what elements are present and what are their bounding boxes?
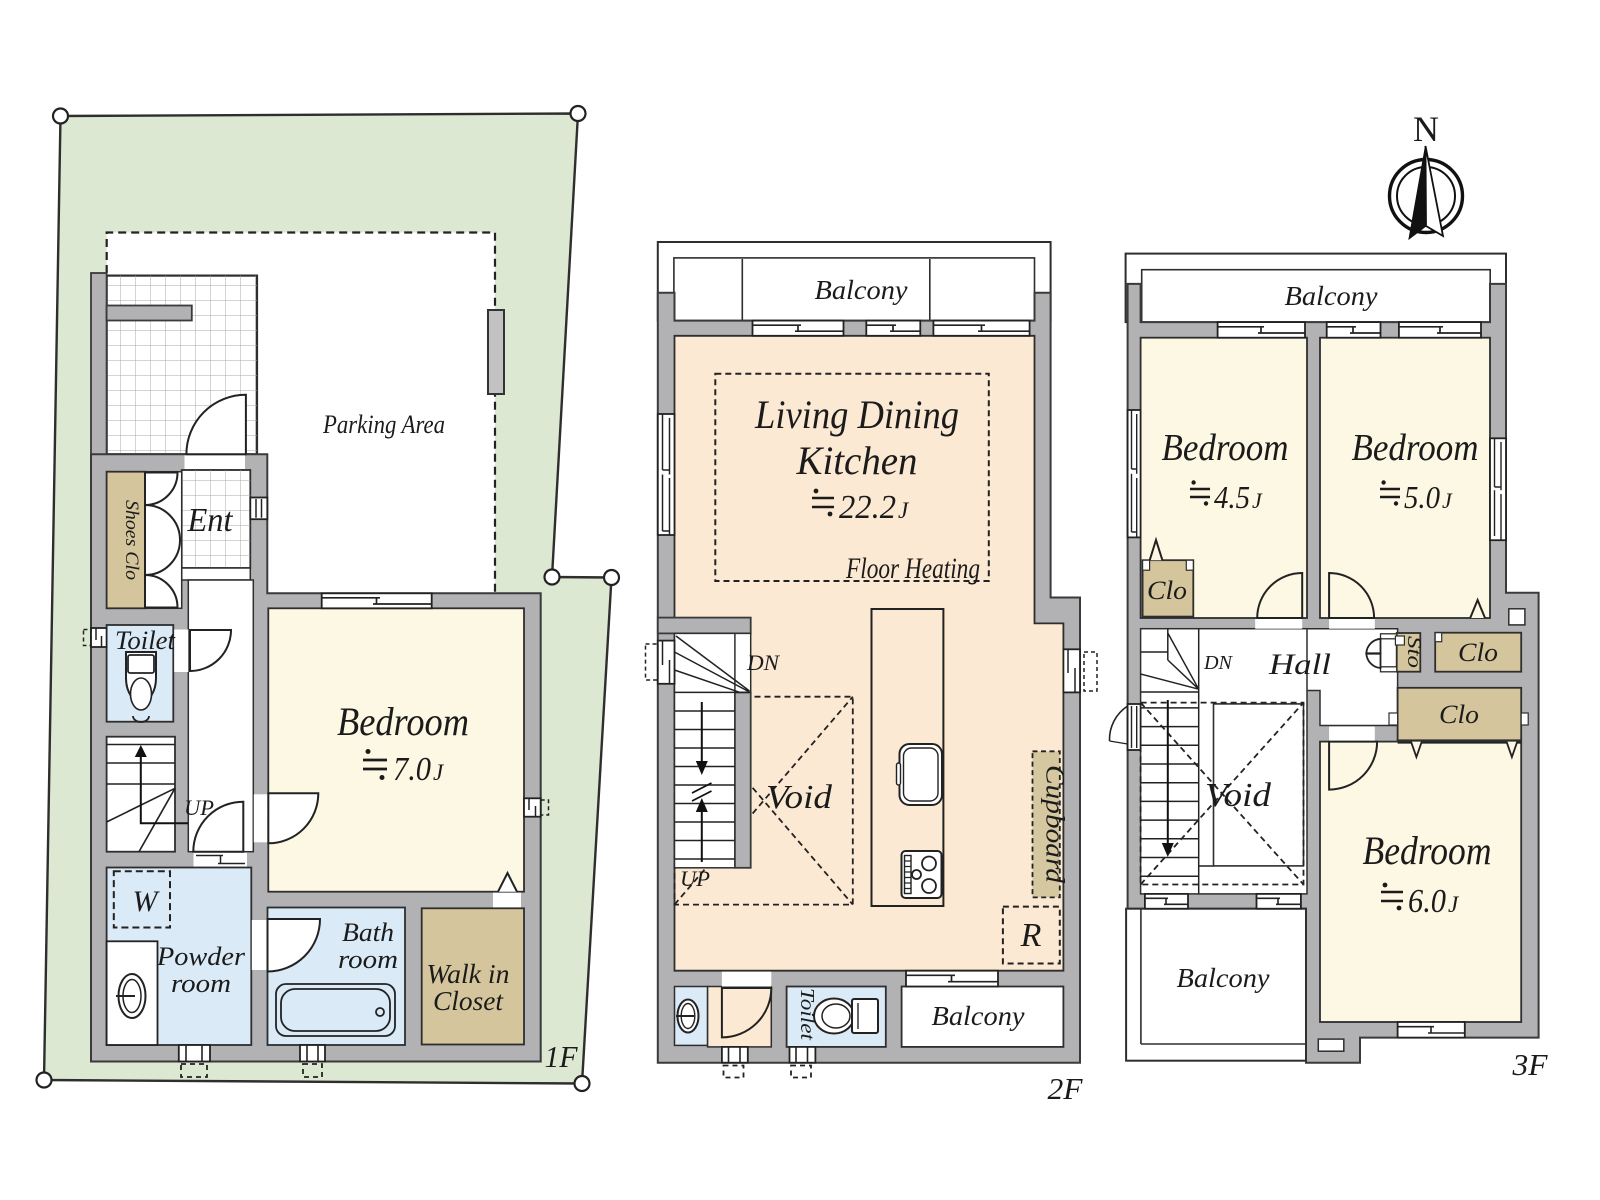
svg-text:Balcony: Balcony xyxy=(932,1001,1025,1031)
svg-text:Void: Void xyxy=(1205,777,1272,814)
svg-text:R: R xyxy=(1020,917,1042,954)
svg-text:7.0: 7.0 xyxy=(393,751,431,788)
svg-text:Bedroom: Bedroom xyxy=(1363,828,1492,873)
svg-text:Living Dining: Living Dining xyxy=(754,392,959,437)
svg-text:Clo: Clo xyxy=(1458,638,1498,667)
svg-text:J: J xyxy=(1442,488,1453,513)
svg-text:Void: Void xyxy=(766,779,833,816)
svg-text:Closet: Closet xyxy=(433,986,505,1016)
svg-text:6.0: 6.0 xyxy=(1408,883,1446,920)
svg-text:Toilet: Toilet xyxy=(115,626,176,655)
svg-text:Parking Area: Parking Area xyxy=(322,410,445,439)
svg-text:5.0: 5.0 xyxy=(1404,479,1440,515)
svg-text:Toilet: Toilet xyxy=(796,988,818,1041)
svg-text:Powder: Powder xyxy=(156,942,246,971)
svg-text:Kitchen: Kitchen xyxy=(796,438,918,483)
svg-text:Shoes Clo: Shoes Clo xyxy=(121,500,142,580)
svg-text:3F: 3F xyxy=(1511,1047,1548,1082)
svg-text:J: J xyxy=(433,760,445,785)
svg-text:DN: DN xyxy=(746,650,780,675)
svg-text:J: J xyxy=(1448,892,1460,917)
svg-text:J: J xyxy=(898,498,910,523)
svg-text:Balcony: Balcony xyxy=(815,275,908,305)
svg-text:1F: 1F xyxy=(545,1039,579,1074)
svg-text:DN: DN xyxy=(1203,652,1234,674)
svg-text:Hall: Hall xyxy=(1268,648,1331,681)
svg-text:Bedroom: Bedroom xyxy=(1162,427,1289,469)
svg-text:UP: UP xyxy=(680,866,710,891)
svg-text:Bedroom: Bedroom xyxy=(1352,427,1479,469)
svg-text:room: room xyxy=(171,969,231,998)
svg-text:Clo: Clo xyxy=(1147,576,1187,605)
svg-text:Bath: Bath xyxy=(342,918,394,947)
svg-text:Ent: Ent xyxy=(187,502,234,539)
svg-text:Sto: Sto xyxy=(1403,636,1425,668)
svg-text:room: room xyxy=(338,945,398,974)
svg-text:Walk in: Walk in xyxy=(427,959,510,989)
svg-text:N: N xyxy=(1413,109,1439,149)
svg-text:J: J xyxy=(1252,488,1263,513)
svg-text:Bedroom: Bedroom xyxy=(337,699,469,744)
svg-text:Cupboard: Cupboard xyxy=(1041,765,1070,884)
svg-text:4.5: 4.5 xyxy=(1214,479,1250,515)
svg-text:Balcony: Balcony xyxy=(1177,963,1270,993)
svg-text:22.2: 22.2 xyxy=(839,489,896,526)
svg-text:UP: UP xyxy=(184,795,214,820)
svg-text:2F: 2F xyxy=(1048,1071,1084,1106)
svg-text:Floor Heating: Floor Heating xyxy=(845,552,980,585)
svg-text:Clo: Clo xyxy=(1439,700,1479,729)
svg-text:W: W xyxy=(133,885,161,918)
svg-text:Balcony: Balcony xyxy=(1285,281,1378,311)
